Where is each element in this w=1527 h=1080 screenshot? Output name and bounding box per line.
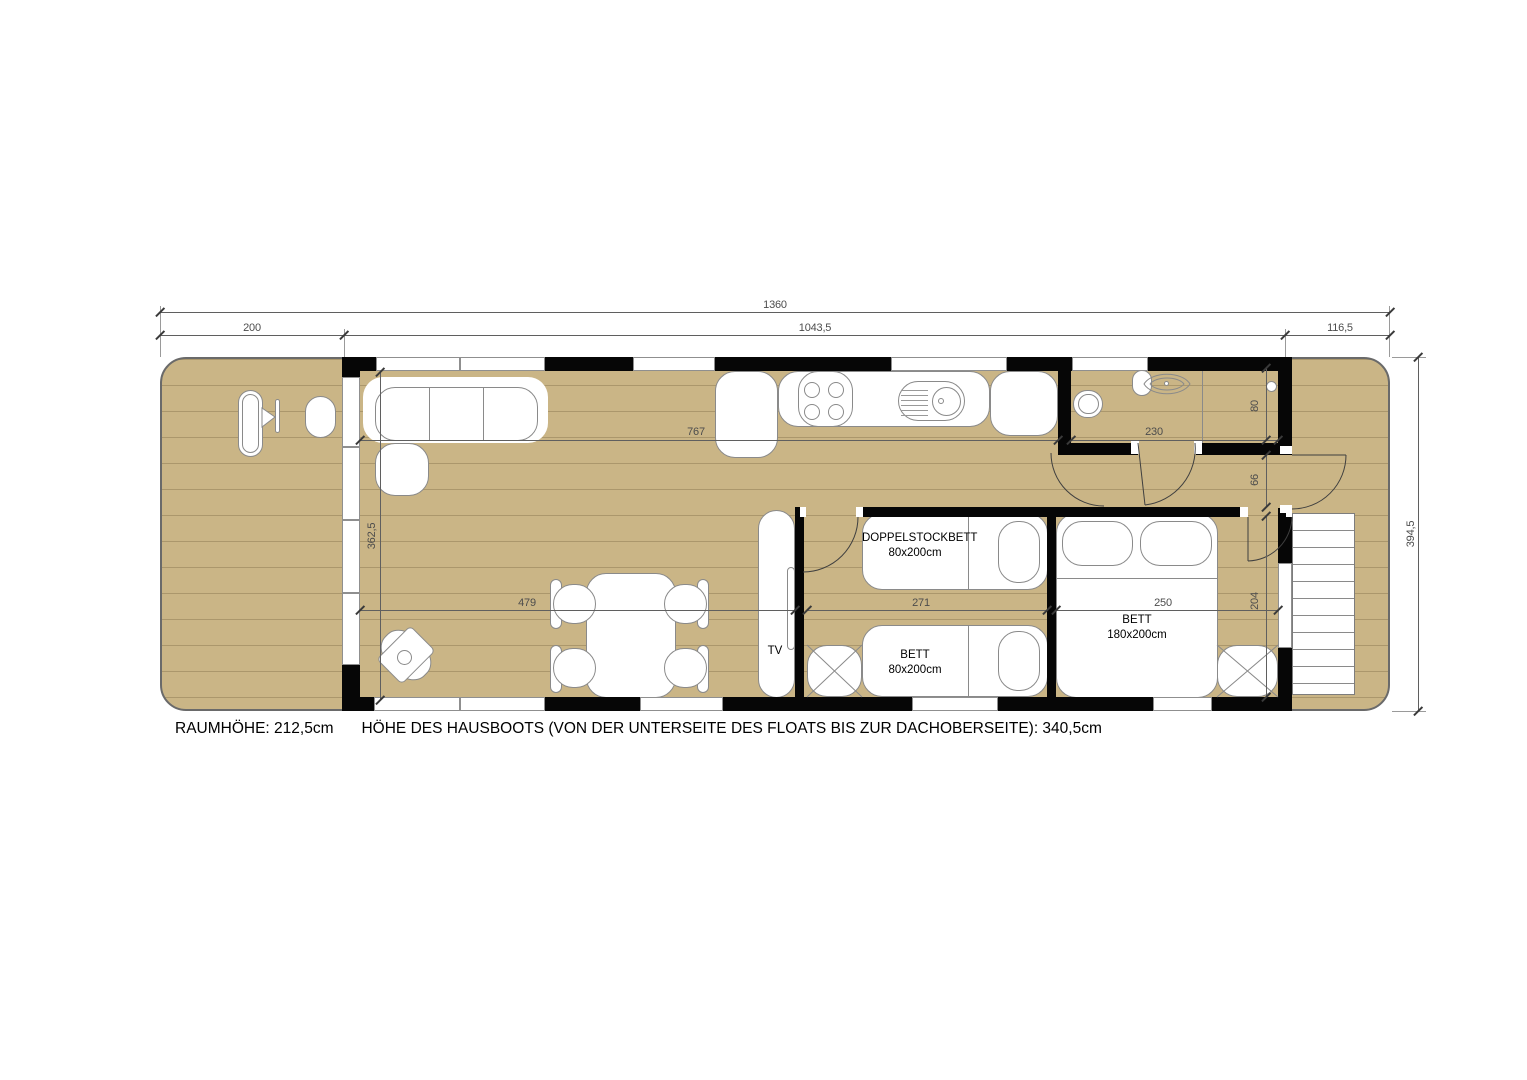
window bbox=[460, 357, 545, 371]
dimension-line bbox=[1266, 516, 1267, 697]
boat-height-note: HÖHE DES HAUSBOOTS (VON DER UNTERSEITE D… bbox=[361, 720, 1101, 738]
window bbox=[342, 447, 360, 520]
door-jamb bbox=[1194, 441, 1202, 454]
wardrobe bbox=[1217, 645, 1278, 697]
wall-segment bbox=[715, 357, 891, 371]
dim-hall-depth: 66 bbox=[1249, 474, 1261, 486]
dim-kitchen-run: 767 bbox=[687, 426, 705, 438]
dim-living-width: 479 bbox=[518, 597, 536, 609]
bunk-bottom-label: BETT 80x200cm bbox=[862, 648, 968, 678]
sofa-seat-divider bbox=[429, 387, 430, 441]
kitchen-tall-cabinet bbox=[715, 371, 778, 458]
sink-faucet bbox=[938, 398, 944, 404]
stove-burner bbox=[828, 382, 844, 398]
dining-chair-seat bbox=[664, 648, 707, 688]
dimension-line bbox=[160, 312, 1390, 313]
stove-burner bbox=[828, 404, 844, 420]
master-bed-label: BETT 180x200cm bbox=[1077, 613, 1197, 643]
dim-master-width: 250 bbox=[1154, 597, 1172, 609]
bunk-top-label: DOPPELSTOCKBETT 80x200cm bbox=[862, 531, 968, 561]
tv-label: TV bbox=[760, 644, 790, 659]
window bbox=[891, 357, 1007, 371]
window bbox=[342, 593, 360, 665]
wall-segment bbox=[1058, 371, 1071, 443]
wall-segment bbox=[723, 697, 912, 711]
dim-shower-depth: 80 bbox=[1249, 400, 1261, 412]
door-jamb bbox=[800, 507, 806, 517]
window bbox=[376, 357, 460, 371]
dim-bunkroom-width: 271 bbox=[912, 597, 930, 609]
bunk-bottom-title: BETT bbox=[862, 648, 968, 663]
dimension-line bbox=[1056, 610, 1278, 611]
stove bbox=[798, 371, 853, 427]
floor-plan: 1360 200 1043,5 116,5 767 230 362,5 479 … bbox=[0, 0, 1527, 1080]
bed-divider bbox=[968, 625, 969, 697]
sofa-chaise bbox=[375, 443, 429, 496]
dimension-line bbox=[807, 610, 1047, 611]
window bbox=[342, 377, 360, 447]
wardrobe bbox=[807, 645, 862, 697]
bunk-bottom-size: 80x200cm bbox=[862, 663, 968, 678]
bunk-pillow bbox=[998, 631, 1040, 691]
wall-segment bbox=[545, 697, 640, 711]
bunk-pillow bbox=[998, 521, 1040, 583]
room-height-note: RAUMHÖHE: 212,5cm bbox=[175, 720, 333, 738]
bunk-top-size: 80x200cm bbox=[862, 546, 968, 561]
dining-chair-seat bbox=[553, 648, 596, 688]
wall-segment bbox=[1278, 648, 1292, 711]
door-jamb bbox=[1131, 441, 1139, 454]
extension-line bbox=[1392, 357, 1426, 358]
wall-segment bbox=[858, 507, 1248, 517]
dim-beam-total: 394,5 bbox=[1405, 521, 1417, 548]
wall-segment bbox=[342, 357, 360, 379]
sink-basin bbox=[932, 387, 961, 416]
dimension-line bbox=[1071, 440, 1278, 441]
door-jamb bbox=[1280, 505, 1292, 513]
dim-living-height: 362,5 bbox=[366, 523, 378, 550]
dimension-line bbox=[360, 440, 1058, 441]
shower-partition bbox=[1202, 371, 1203, 443]
stove-burner bbox=[804, 382, 820, 398]
extension-line bbox=[1392, 711, 1426, 712]
wall-segment bbox=[545, 357, 633, 371]
window bbox=[912, 697, 998, 711]
sink-drainboard bbox=[901, 386, 928, 416]
dimension-line bbox=[1266, 368, 1267, 440]
window bbox=[342, 520, 360, 593]
bed-divider bbox=[968, 513, 969, 590]
terrace-table-top bbox=[242, 394, 259, 453]
dim-total-length: 1360 bbox=[763, 299, 787, 311]
dim-bath-width: 230 bbox=[1145, 426, 1163, 438]
bath-counter bbox=[1132, 370, 1152, 396]
wall-segment bbox=[1058, 443, 1138, 455]
armchair-cushion bbox=[397, 650, 412, 665]
window bbox=[633, 357, 715, 371]
stove-burner bbox=[804, 404, 820, 420]
door-jamb bbox=[856, 507, 863, 517]
wall-segment bbox=[1007, 357, 1072, 371]
window bbox=[640, 697, 723, 711]
wall-segment bbox=[795, 507, 804, 697]
dining-table bbox=[586, 573, 676, 698]
door-jamb bbox=[1280, 446, 1292, 454]
bunk-top-title: DOPPELSTOCKBETT bbox=[862, 531, 968, 546]
terrace-table-leg bbox=[275, 399, 280, 433]
footer-note: RAUMHÖHE: 212,5cm HÖHE DES HAUSBOOTS (VO… bbox=[175, 720, 1102, 738]
wall-segment bbox=[998, 697, 1153, 711]
armchair bbox=[377, 622, 435, 688]
basin-drain bbox=[1164, 381, 1169, 386]
wall-segment bbox=[1196, 443, 1292, 455]
dimension-line bbox=[360, 610, 795, 611]
dimension-line bbox=[380, 372, 381, 700]
window bbox=[1072, 357, 1148, 371]
stairs bbox=[1292, 513, 1355, 695]
kitchen-right-cabinet bbox=[990, 371, 1058, 436]
terrace-chair bbox=[305, 396, 336, 438]
master-bed-title: BETT bbox=[1077, 613, 1197, 628]
sofa-seat-divider bbox=[483, 387, 484, 441]
dim-cabin-length: 1043,5 bbox=[799, 322, 831, 334]
dim-bedroom-depth: 204 bbox=[1249, 592, 1261, 610]
toilet-bowl bbox=[1078, 394, 1099, 414]
dining-chair-seat bbox=[664, 584, 707, 624]
window bbox=[1153, 697, 1212, 711]
dimension-line bbox=[1266, 455, 1267, 507]
wall-segment bbox=[342, 665, 360, 711]
dimension-line bbox=[1418, 357, 1419, 711]
dim-right-terrace: 116,5 bbox=[1327, 322, 1353, 334]
door-jamb bbox=[1240, 507, 1248, 517]
blanket-line bbox=[1056, 578, 1218, 579]
window bbox=[460, 697, 545, 711]
dim-left-terrace: 200 bbox=[243, 322, 261, 334]
sofa-seats bbox=[375, 387, 538, 441]
master-bed-size: 180x200cm bbox=[1077, 628, 1197, 643]
master-pillow bbox=[1062, 521, 1133, 566]
dining-chair-seat bbox=[553, 584, 596, 624]
window bbox=[374, 697, 460, 711]
master-pillow bbox=[1140, 521, 1212, 566]
shower-head bbox=[1266, 381, 1277, 392]
